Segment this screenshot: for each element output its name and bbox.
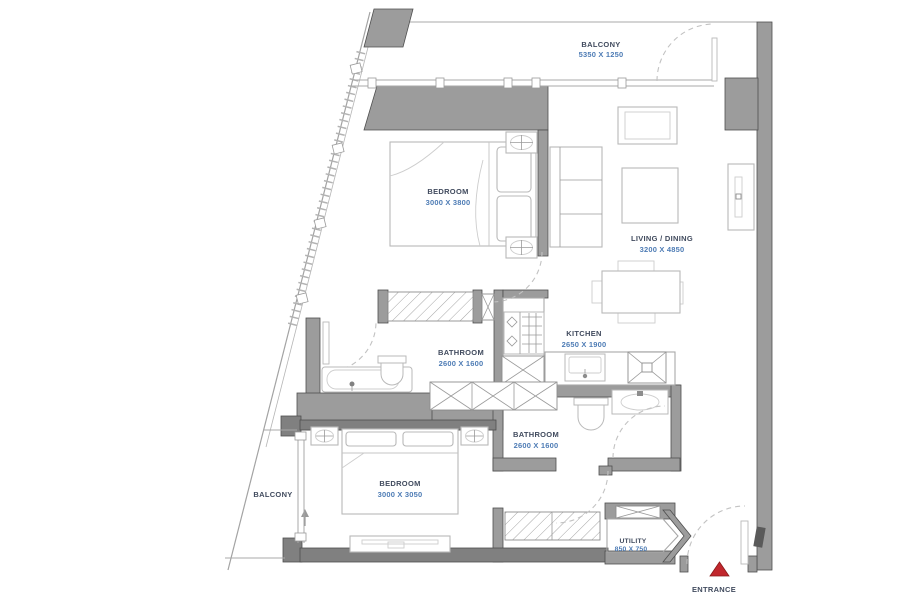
rail-post bbox=[368, 78, 376, 88]
entrance-door-panel bbox=[741, 521, 748, 564]
room-dims: 3200 X 4850 bbox=[640, 245, 685, 254]
room-label: BEDROOM bbox=[427, 187, 468, 196]
room-label: BALCONY bbox=[581, 40, 620, 49]
wardrobe-icon bbox=[430, 382, 557, 410]
wall-bedroom1-right bbox=[538, 130, 548, 256]
pillow-icon bbox=[497, 147, 531, 192]
diagonal-window-hatch bbox=[291, 52, 361, 330]
wall-mid-jamb bbox=[473, 290, 482, 323]
room-dims: 3000 X 3800 bbox=[426, 198, 471, 207]
room-dims: 3000 X 3050 bbox=[378, 490, 423, 499]
bedroom-1: BEDROOM 3000 X 3800 bbox=[390, 132, 542, 302]
room-dims: 2600 X 1600 bbox=[439, 359, 484, 368]
nightstand-lamp-icon bbox=[506, 132, 537, 153]
entrance-label: ENTRANCE bbox=[692, 585, 736, 594]
tv-unit-icon bbox=[728, 164, 754, 230]
faucet bbox=[637, 391, 643, 396]
room-dims: 2600 X 1600 bbox=[514, 441, 559, 450]
rail-post bbox=[618, 78, 626, 88]
entrance: ENTRANCE bbox=[687, 506, 748, 594]
door-arc bbox=[687, 506, 745, 564]
wardrobe-icon bbox=[388, 292, 473, 321]
armchair-icon bbox=[618, 107, 677, 144]
wall-bedroom1-top bbox=[364, 86, 548, 130]
floor-plan: BALCONY 5350 X 1250 BEDROOM 3000 X 3800 bbox=[0, 0, 900, 600]
room-label: BALCONY bbox=[253, 490, 292, 499]
living-dining: LIVING / DINING 3200 X 4850 bbox=[550, 107, 754, 323]
toilet-icon bbox=[574, 398, 608, 430]
window-post bbox=[295, 432, 306, 440]
pillow-icon bbox=[497, 196, 531, 241]
rail-post bbox=[504, 78, 512, 88]
stove-icon bbox=[504, 312, 544, 354]
wall-mid-jamb bbox=[378, 290, 388, 323]
room-dims: 850 X 750 bbox=[615, 546, 648, 553]
wall-bottom bbox=[300, 548, 608, 562]
dining-table-icon bbox=[592, 261, 683, 323]
window-post bbox=[295, 533, 306, 541]
room-label: BATHROOM bbox=[438, 348, 484, 357]
window-post bbox=[314, 218, 326, 229]
room-dims: 5350 X 1250 bbox=[579, 50, 624, 59]
vanity-sink-icon bbox=[612, 390, 668, 414]
wall-kitchen-top bbox=[503, 290, 548, 298]
kitchen-sink-icon bbox=[565, 354, 605, 381]
wall-corner-bl bbox=[283, 538, 302, 562]
window-post bbox=[296, 293, 308, 304]
hall-closet-icon bbox=[505, 512, 600, 540]
utility-closet-icon bbox=[616, 506, 660, 518]
pillow-icon bbox=[346, 432, 396, 446]
entrance-jamb-right bbox=[748, 556, 757, 572]
rail-post bbox=[532, 78, 540, 88]
window-post bbox=[350, 63, 362, 74]
door-arc bbox=[326, 322, 376, 372]
wall-right bbox=[757, 22, 772, 570]
rail-post bbox=[436, 78, 444, 88]
room-label: KITCHEN bbox=[566, 329, 601, 338]
door-arc bbox=[657, 24, 714, 81]
dresser-icon bbox=[350, 536, 450, 552]
door-panel bbox=[323, 322, 329, 364]
closet-icon bbox=[482, 294, 494, 320]
nightstand-lamp-icon bbox=[461, 427, 488, 445]
north-arrow-icon bbox=[301, 509, 309, 526]
washer-icon bbox=[628, 352, 666, 383]
pillow-icon bbox=[403, 432, 453, 446]
wall-top-column bbox=[364, 9, 413, 47]
room-label: UTILITY bbox=[619, 538, 646, 545]
floor-plan-page: BALCONY 5350 X 1250 BEDROOM 3000 X 3800 bbox=[0, 0, 900, 600]
room-label: BEDROOM bbox=[379, 479, 420, 488]
nightstand-lamp-icon bbox=[311, 427, 338, 445]
sofa-icon bbox=[550, 147, 602, 247]
door-jamb bbox=[599, 466, 612, 475]
wall-bathroom1-left bbox=[306, 318, 320, 400]
wall-right-step bbox=[725, 78, 758, 130]
wall-hall-a bbox=[493, 458, 556, 471]
hallway bbox=[505, 471, 608, 540]
window-post bbox=[332, 143, 344, 154]
room-label: LIVING / DINING bbox=[631, 234, 693, 243]
balcony-door-panel bbox=[712, 38, 717, 81]
bedroom-2: BEDROOM 3000 X 3050 bbox=[301, 427, 488, 552]
coffee-table-icon bbox=[622, 168, 678, 223]
room-label: BATHROOM bbox=[513, 430, 559, 439]
room-dims: 2650 X 1900 bbox=[562, 340, 607, 349]
nightstand-lamp-icon bbox=[506, 237, 537, 258]
fridge-icon bbox=[502, 356, 544, 384]
wall-hall-b bbox=[608, 458, 680, 471]
entrance-marker-icon bbox=[710, 562, 729, 576]
